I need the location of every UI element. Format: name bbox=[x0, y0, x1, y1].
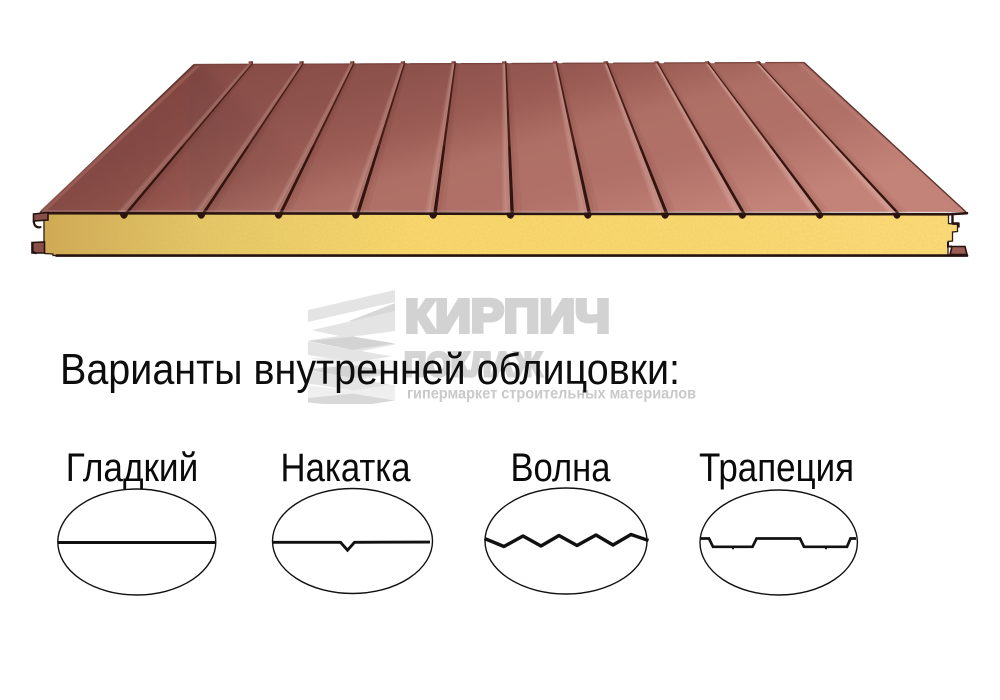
svg-text:Трапеция: Трапеция bbox=[699, 446, 854, 490]
svg-text:Волна: Волна bbox=[511, 446, 612, 490]
svg-text:Накатка: Накатка bbox=[281, 446, 412, 490]
svg-text:Гладкий: Гладкий bbox=[66, 446, 199, 490]
svg-text:Варианты внутренней облицовки:: Варианты внутренней облицовки: bbox=[60, 346, 680, 394]
